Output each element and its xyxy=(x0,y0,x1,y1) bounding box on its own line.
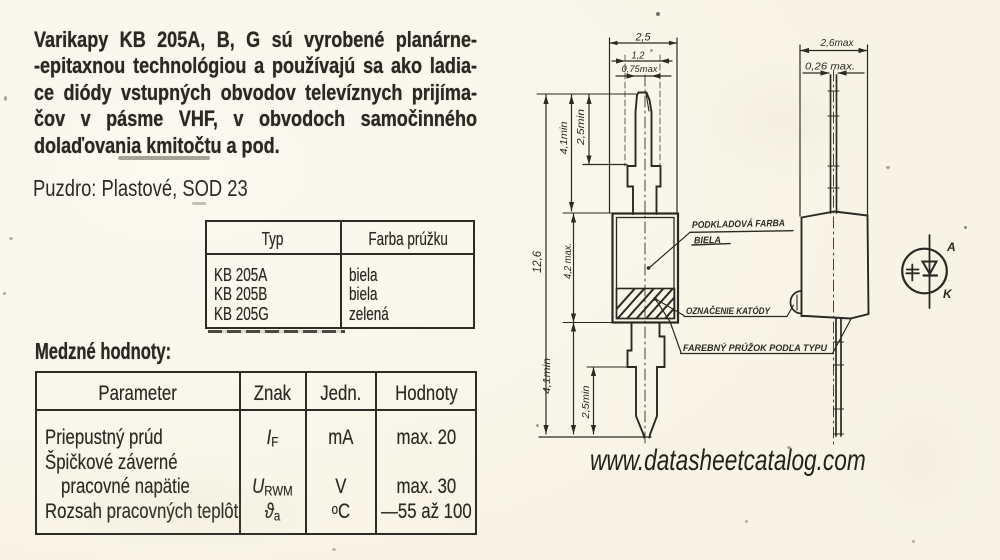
svg-text:4,2 max.: 4,2 max. xyxy=(562,243,574,279)
svg-text:0,75max: 0,75max xyxy=(622,64,659,74)
svg-text:4,1min: 4,1min xyxy=(541,358,553,394)
svg-text:2,5: 2,5 xyxy=(635,32,652,44)
svg-text:FAREBNÝ PRÚŽOK PODĽA TYPU: FAREBNÝ PRÚŽOK PODĽA TYPU xyxy=(683,342,828,354)
svg-text:1,2: 1,2 xyxy=(632,50,645,62)
svg-text:4,1min: 4,1min xyxy=(558,121,570,154)
svg-text:PODKLADOVÁ FARBA: PODKLADOVÁ FARBA xyxy=(692,218,785,231)
svg-text:2,5min: 2,5min xyxy=(580,385,592,419)
svg-text:12,6: 12,6 xyxy=(530,251,544,273)
svg-text:K: K xyxy=(943,287,953,301)
svg-text:OZNAČENIE KATÓDY: OZNAČENIE KATÓDY xyxy=(686,305,771,317)
svg-text:2,5min: 2,5min xyxy=(575,109,587,146)
svg-text:A: A xyxy=(946,240,956,254)
svg-text:2,6max: 2,6max xyxy=(820,37,855,49)
